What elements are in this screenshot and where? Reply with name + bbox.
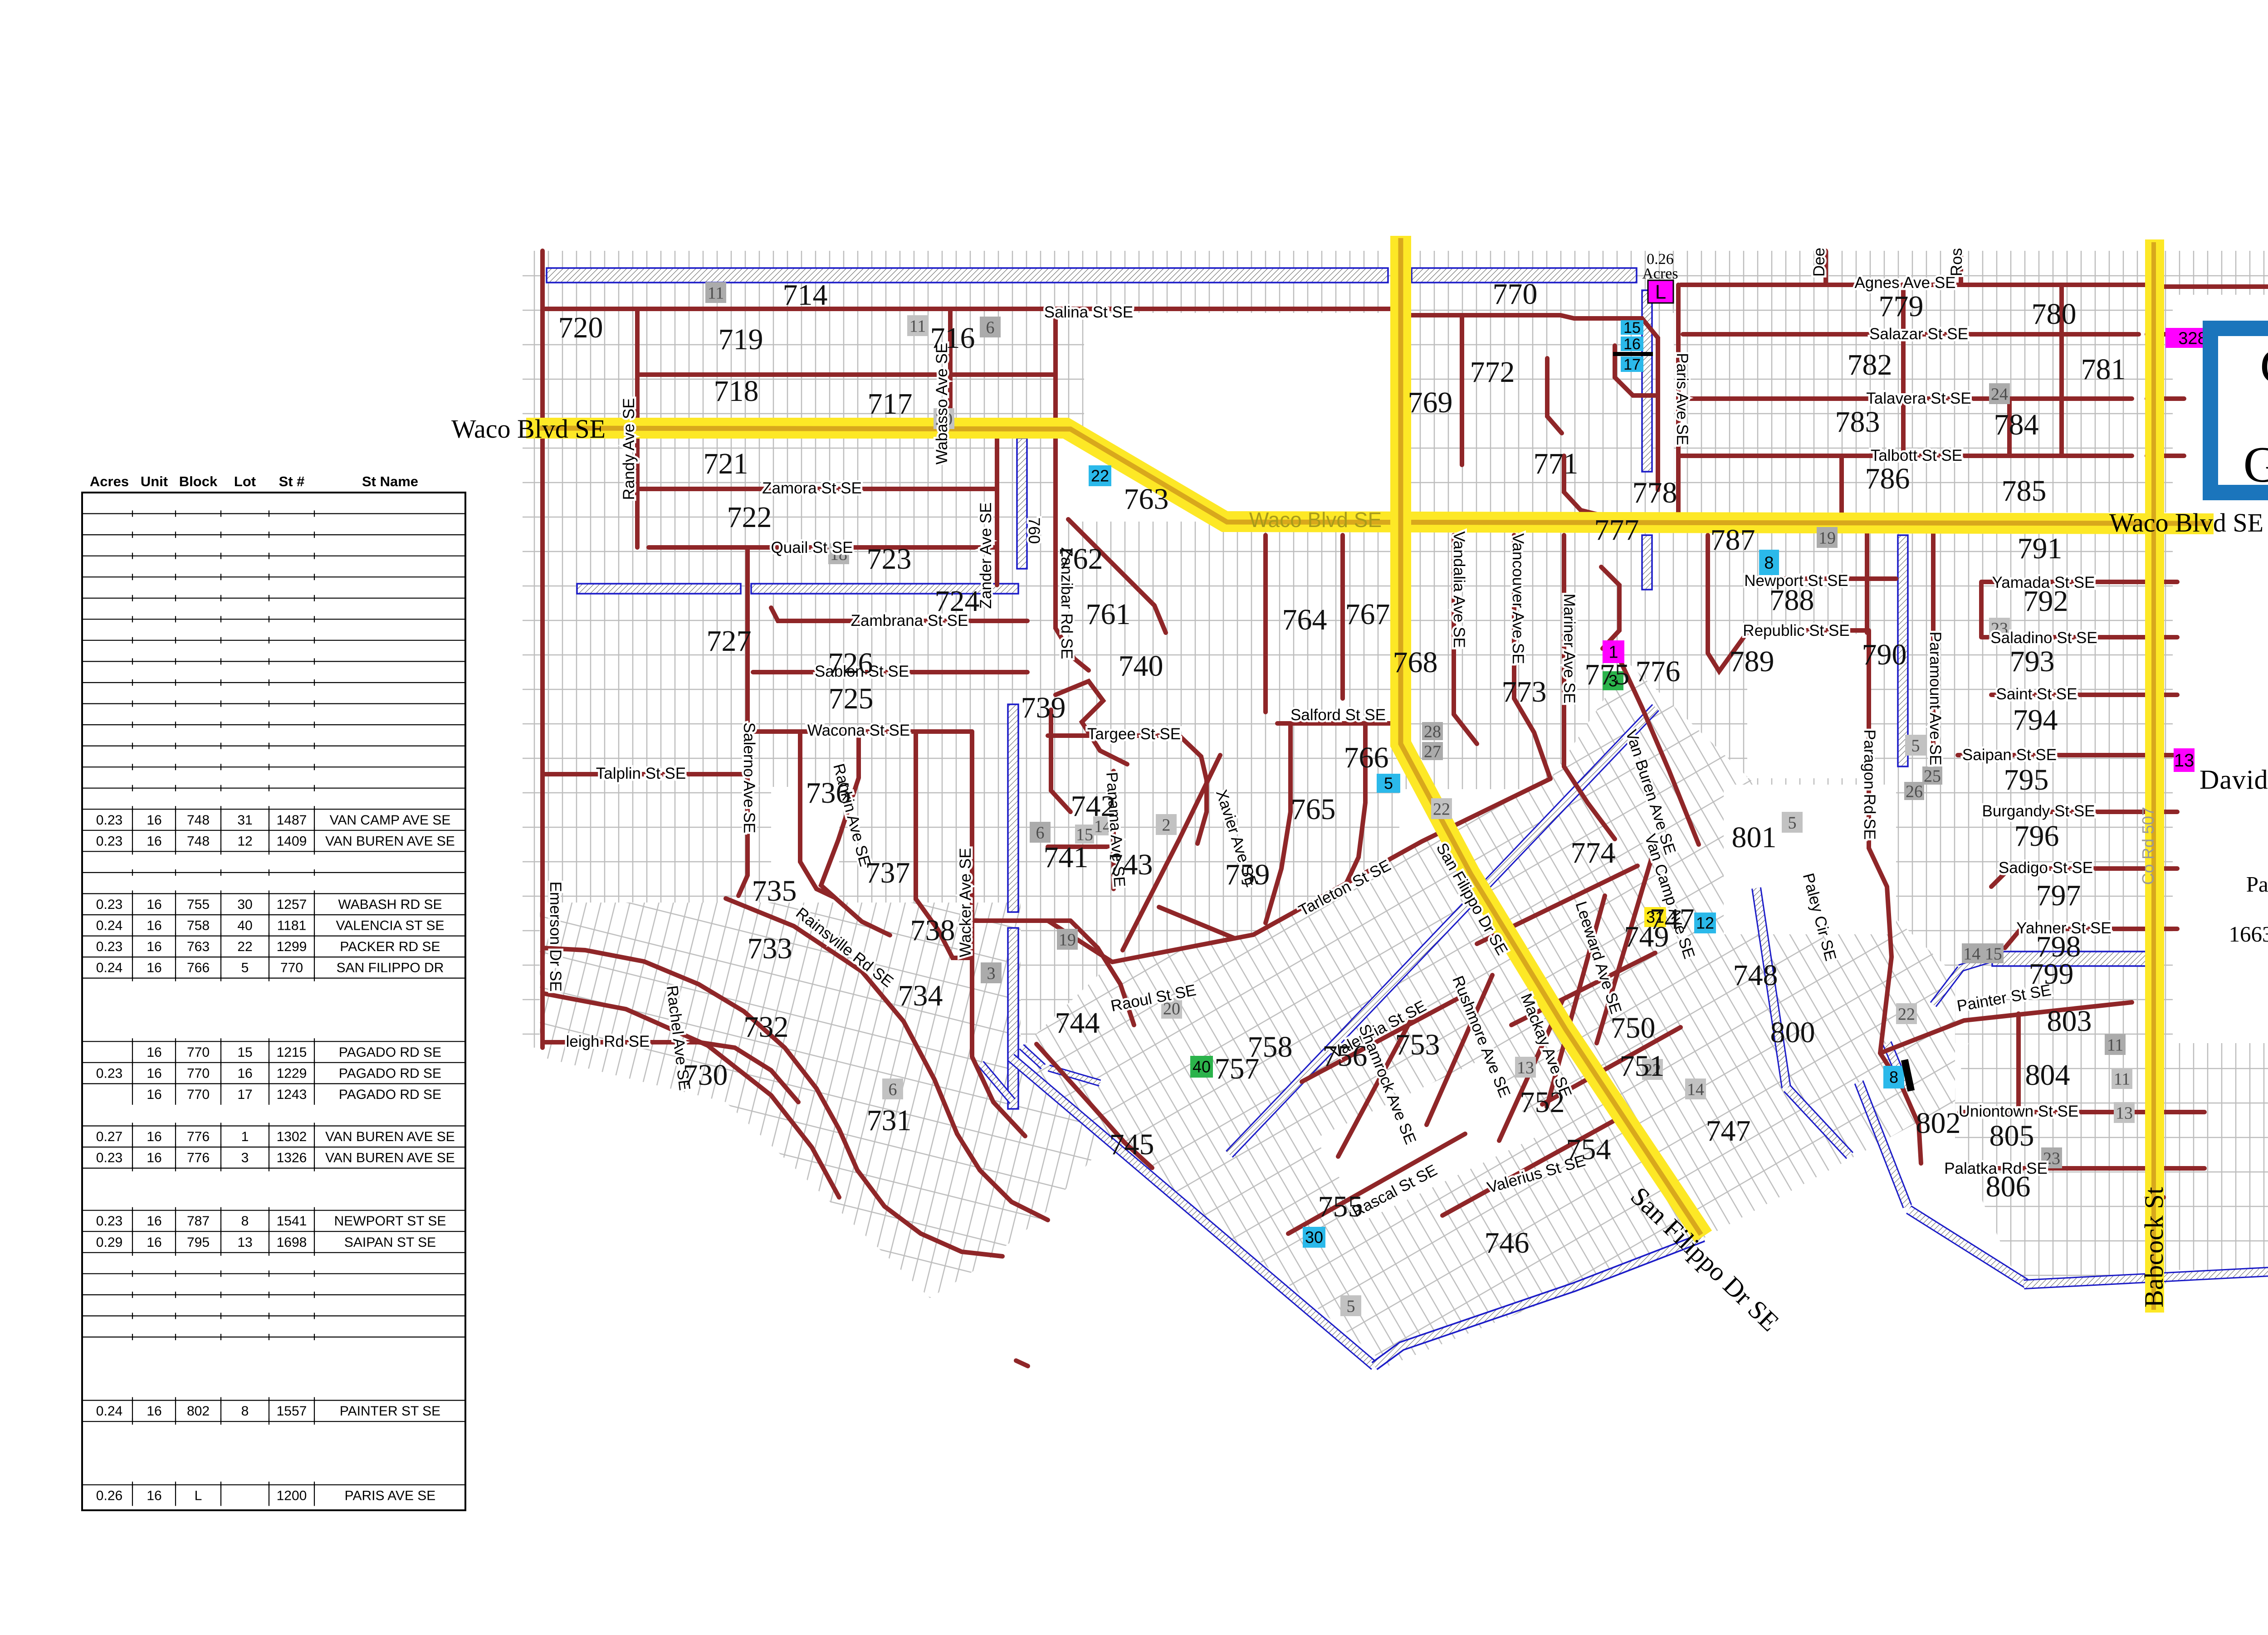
svg-text:St Name: St Name <box>362 473 418 489</box>
svg-text:Zamora St SE: Zamora St SE <box>762 479 862 497</box>
svg-text:5: 5 <box>1384 774 1393 793</box>
svg-text:27: 27 <box>1424 742 1441 761</box>
svg-text:Dee: Dee <box>1810 248 1828 277</box>
svg-text:Salina St SE: Salina St SE <box>1044 303 1134 321</box>
svg-text:Talplin St SE: Talplin St SE <box>596 765 686 782</box>
svg-text:766: 766 <box>1344 741 1389 774</box>
svg-text:763: 763 <box>1124 483 1169 516</box>
svg-text:St #: St # <box>279 473 305 489</box>
svg-text:Saipan St SE: Saipan St SE <box>1962 746 2057 764</box>
svg-text:11: 11 <box>2107 1035 2124 1054</box>
svg-text:741: 741 <box>1044 841 1089 874</box>
svg-text:Sadigo St SE: Sadigo St SE <box>1999 859 2093 877</box>
svg-text:719: 719 <box>719 323 763 356</box>
svg-text:Block: Block <box>179 473 218 489</box>
svg-text:leigh Rd SE: leigh Rd SE <box>566 1033 650 1050</box>
svg-text:758: 758 <box>187 918 210 933</box>
svg-text:776: 776 <box>1636 655 1681 688</box>
svg-text:799: 799 <box>2029 957 2074 991</box>
svg-text:PAGADO RD SE: PAGADO RD SE <box>339 1087 441 1102</box>
svg-text:1698: 1698 <box>277 1235 307 1250</box>
svg-text:1: 1 <box>241 1129 249 1144</box>
svg-text:722: 722 <box>727 501 772 534</box>
svg-text:25: 25 <box>1924 766 1941 786</box>
svg-text:Paragon Rd SE: Paragon Rd SE <box>1861 729 1878 839</box>
svg-text:L: L <box>1655 281 1666 303</box>
svg-text:22: 22 <box>1433 800 1450 819</box>
svg-text:779: 779 <box>1879 290 1924 323</box>
svg-text:24: 24 <box>1991 385 2008 404</box>
svg-text:734: 734 <box>898 979 943 1012</box>
svg-text:16: 16 <box>147 961 161 976</box>
svg-text:16: 16 <box>147 813 161 828</box>
svg-text:801: 801 <box>1732 821 1777 854</box>
svg-text:Randy Ave SE: Randy Ave SE <box>620 398 638 500</box>
svg-text:Paris Ave SE: Paris Ave SE <box>1673 353 1691 445</box>
svg-text:Saladino St SE: Saladino St SE <box>1990 629 2097 647</box>
svg-text:790: 790 <box>1862 638 1907 671</box>
svg-text:789: 789 <box>1730 645 1774 678</box>
svg-text:795: 795 <box>187 1235 210 1250</box>
svg-text:5: 5 <box>1788 813 1797 832</box>
svg-text:11: 11 <box>708 283 724 303</box>
svg-text:Quail St SE: Quail St SE <box>771 539 853 556</box>
svg-text:755: 755 <box>1318 1190 1363 1223</box>
svg-text:797: 797 <box>2036 879 2081 912</box>
svg-text:0.23: 0.23 <box>96 939 122 954</box>
svg-text:Wabasso Ave SE: Wabasso Ave SE <box>933 343 951 464</box>
svg-text:13: 13 <box>237 1235 252 1250</box>
svg-text:Paramount Ave SE: Paramount Ave SE <box>1926 631 1944 765</box>
svg-text:1299: 1299 <box>277 939 307 954</box>
svg-text:Salford St SE: Salford St SE <box>1290 706 1386 724</box>
svg-text:Targee St SE: Targee St SE <box>1087 725 1181 743</box>
svg-text:767: 767 <box>1345 598 1390 631</box>
svg-text:40: 40 <box>237 918 252 933</box>
svg-text:780: 780 <box>2032 298 2077 331</box>
svg-text:5: 5 <box>1347 1297 1355 1316</box>
svg-text:1257: 1257 <box>277 897 307 912</box>
svg-text:19: 19 <box>1818 528 1836 547</box>
svg-text:720: 720 <box>558 311 603 344</box>
svg-text:739: 739 <box>1021 691 1066 724</box>
svg-text:804: 804 <box>2025 1059 2070 1092</box>
svg-text:SAIPAN ST SE: SAIPAN ST SE <box>344 1235 436 1250</box>
svg-text:736: 736 <box>806 776 851 810</box>
svg-text:744: 744 <box>1055 1006 1100 1040</box>
svg-text:805: 805 <box>1989 1119 2034 1152</box>
svg-text:1229: 1229 <box>277 1066 307 1081</box>
svg-text:1200: 1200 <box>277 1488 307 1503</box>
svg-text:Wacona St SE: Wacona St SE <box>807 722 910 739</box>
svg-text:15: 15 <box>237 1045 252 1060</box>
svg-text:Waco Blvd SE: Waco Blvd SE <box>1249 508 1382 532</box>
svg-text:768: 768 <box>1393 646 1438 679</box>
svg-text:773: 773 <box>1502 675 1547 708</box>
svg-text:772: 772 <box>1470 356 1515 389</box>
svg-text:8: 8 <box>241 1214 249 1229</box>
svg-text:763: 763 <box>187 939 210 954</box>
svg-text:PARIS AVE SE: PARIS AVE SE <box>345 1488 436 1503</box>
svg-text:16: 16 <box>1623 336 1641 353</box>
svg-text:Burgandy St SE: Burgandy St SE <box>1982 802 2095 820</box>
svg-text:766: 766 <box>187 961 210 976</box>
svg-text:3: 3 <box>987 964 996 983</box>
svg-text:40: 40 <box>1193 1058 1211 1076</box>
svg-text:781: 781 <box>2081 353 2126 386</box>
svg-text:1409: 1409 <box>277 834 307 849</box>
svg-text:770: 770 <box>187 1087 210 1102</box>
svg-text:16: 16 <box>147 1129 161 1144</box>
svg-text:747: 747 <box>1650 903 1695 936</box>
svg-text:22: 22 <box>1898 1005 1915 1024</box>
svg-text:792: 792 <box>2024 585 2068 618</box>
svg-text:717: 717 <box>868 387 913 420</box>
svg-text:753: 753 <box>1395 1028 1440 1061</box>
svg-text:Wacker Ave SE: Wacker Ave SE <box>957 848 974 957</box>
svg-text:Uniontown St SE: Uniontown St SE <box>1959 1103 2079 1120</box>
svg-text:1243: 1243 <box>277 1087 307 1102</box>
svg-text:PAINTER ST SE: PAINTER ST SE <box>340 1404 440 1419</box>
svg-text:8: 8 <box>1764 553 1774 572</box>
svg-text:Vandalia Ave SE: Vandalia Ave SE <box>1450 531 1468 648</box>
svg-text:16: 16 <box>147 918 161 933</box>
svg-text:733: 733 <box>748 932 792 965</box>
svg-text:730: 730 <box>683 1059 728 1092</box>
svg-text:1326: 1326 <box>277 1151 307 1166</box>
svg-text:16: 16 <box>147 939 161 954</box>
svg-text:775: 775 <box>1585 658 1630 691</box>
svg-text:776: 776 <box>187 1151 210 1166</box>
svg-text:Waco Blvd SE: Waco Blvd SE <box>451 414 606 444</box>
svg-text:770: 770 <box>187 1066 210 1081</box>
svg-text:740: 740 <box>1119 649 1163 683</box>
svg-text:793: 793 <box>2010 645 2055 678</box>
svg-text:WABASH RD SE: WABASH RD SE <box>338 897 442 912</box>
svg-text:Babcock St: Babcock St <box>2139 1187 2169 1308</box>
svg-text:759: 759 <box>1225 858 1270 891</box>
svg-text:11: 11 <box>2114 1069 2131 1088</box>
svg-text:VAN BUREN AVE SE: VAN BUREN AVE SE <box>325 1151 455 1166</box>
svg-text:784: 784 <box>1994 408 2039 441</box>
svg-text:727: 727 <box>707 625 752 658</box>
svg-text:6: 6 <box>1036 823 1045 842</box>
svg-text:723: 723 <box>867 542 912 576</box>
svg-text:721: 721 <box>704 447 748 480</box>
svg-text:747: 747 <box>1706 1114 1751 1147</box>
svg-text:Republic St SE: Republic St SE <box>1743 622 1849 639</box>
svg-text:0.23: 0.23 <box>96 1151 122 1166</box>
svg-text:1181: 1181 <box>277 918 307 933</box>
svg-text:765: 765 <box>1291 793 1336 826</box>
svg-text:800: 800 <box>1770 1016 1815 1049</box>
svg-text:30: 30 <box>237 897 252 912</box>
svg-text:Lot: Lot <box>234 473 256 489</box>
svg-text:6: 6 <box>889 1080 897 1099</box>
svg-text:1215: 1215 <box>277 1045 307 1060</box>
svg-text:8: 8 <box>241 1404 249 1419</box>
svg-text:732: 732 <box>744 1010 789 1044</box>
svg-text:NEWPORT ST SE: NEWPORT ST SE <box>334 1214 446 1229</box>
svg-text:770: 770 <box>187 1045 210 1060</box>
svg-text:2: 2 <box>1162 815 1171 835</box>
svg-text:0.29: 0.29 <box>96 1235 122 1250</box>
svg-text:VAN CAMP AVE SE: VAN CAMP AVE SE <box>330 813 451 828</box>
svg-text:16: 16 <box>147 1066 161 1081</box>
svg-text:718: 718 <box>714 375 759 408</box>
svg-text:1541: 1541 <box>277 1214 307 1229</box>
svg-text:8: 8 <box>1889 1068 1898 1087</box>
svg-text:L: L <box>195 1488 202 1503</box>
svg-text:Emerson Dr SE: Emerson Dr SE <box>547 881 564 991</box>
svg-text:783: 783 <box>1835 405 1880 439</box>
svg-text:802: 802 <box>187 1404 210 1419</box>
svg-text:12: 12 <box>237 834 252 849</box>
svg-text:748: 748 <box>1733 959 1778 992</box>
svg-text:803: 803 <box>2047 1005 2092 1038</box>
svg-text:760: 760 <box>1025 517 1043 544</box>
svg-text:756: 756 <box>1323 1040 1368 1073</box>
svg-text:782: 782 <box>1848 348 1892 381</box>
svg-text:19: 19 <box>1059 930 1076 949</box>
svg-text:PalmBayLand@Gmail.com: PalmBayLand@Gmail.com <box>2246 872 2268 897</box>
svg-text:Co Rd 507: Co Rd 507 <box>2139 807 2157 885</box>
svg-text:30: 30 <box>1305 1228 1323 1247</box>
svg-text:769: 769 <box>1408 386 1453 419</box>
svg-text:0.23: 0.23 <box>96 834 122 849</box>
svg-text:806: 806 <box>1986 1170 2031 1203</box>
svg-text:746: 746 <box>1485 1226 1530 1259</box>
svg-text:Mariner Ave SE: Mariner Ave SE <box>1560 594 1578 704</box>
svg-text:Acres: Acres <box>90 473 129 489</box>
svg-text:SAN FILIPPO DR: SAN FILIPPO DR <box>337 961 444 976</box>
svg-text:774: 774 <box>1571 836 1616 869</box>
svg-text:750: 750 <box>1611 1011 1656 1044</box>
svg-text:13: 13 <box>2174 751 2195 771</box>
svg-text:0.23: 0.23 <box>96 813 122 828</box>
svg-text:755: 755 <box>187 897 210 912</box>
svg-text:16: 16 <box>147 1214 161 1229</box>
svg-text:748: 748 <box>187 834 210 849</box>
svg-text:3: 3 <box>241 1151 249 1166</box>
svg-text:13: 13 <box>1517 1058 1534 1077</box>
svg-text:16: 16 <box>147 897 161 912</box>
svg-text:761: 761 <box>1086 598 1131 631</box>
svg-text:0.27: 0.27 <box>96 1129 122 1144</box>
svg-text:778: 778 <box>1633 476 1677 509</box>
svg-text:731: 731 <box>867 1104 912 1137</box>
svg-text:16: 16 <box>147 1488 161 1503</box>
svg-text:0.23: 0.23 <box>96 1066 122 1081</box>
svg-text:14: 14 <box>1687 1080 1704 1099</box>
svg-text:Ros: Ros <box>1948 248 1965 276</box>
svg-text:PAGADO RD SE: PAGADO RD SE <box>339 1045 441 1060</box>
svg-text:745: 745 <box>1110 1128 1154 1161</box>
svg-text:796: 796 <box>2014 820 2059 853</box>
svg-text:788: 788 <box>1769 584 1814 617</box>
svg-text:1302: 1302 <box>277 1129 307 1144</box>
svg-text:757: 757 <box>1215 1052 1260 1085</box>
svg-text:764: 764 <box>1282 603 1327 636</box>
svg-text:726: 726 <box>828 647 873 680</box>
svg-text:22: 22 <box>237 939 252 954</box>
svg-text:0.23: 0.23 <box>96 897 122 912</box>
svg-text:David Moallem & Companies: David Moallem & Companies <box>2200 765 2268 795</box>
svg-text:6: 6 <box>986 318 995 337</box>
svg-text:Talavera St SE: Talavera St SE <box>1866 390 1971 407</box>
svg-text:VAN BUREN AVE SE: VAN BUREN AVE SE <box>325 834 455 849</box>
svg-text:1487: 1487 <box>277 813 307 828</box>
svg-text:16: 16 <box>147 1404 161 1419</box>
svg-text:Acres: Acres <box>1642 265 1678 282</box>
svg-text:17: 17 <box>237 1087 252 1102</box>
svg-text:11: 11 <box>909 317 926 336</box>
svg-text:13: 13 <box>2116 1103 2133 1123</box>
svg-text:770: 770 <box>280 961 303 976</box>
svg-text:754: 754 <box>1566 1133 1611 1166</box>
svg-text:PACKER RD SE: PACKER RD SE <box>340 939 440 954</box>
svg-text:1557: 1557 <box>277 1404 307 1419</box>
svg-text:737: 737 <box>865 856 910 889</box>
svg-text:714: 714 <box>783 278 828 312</box>
svg-text:0.24: 0.24 <box>96 1404 122 1419</box>
svg-text:City Water: City Water <box>2260 338 2268 395</box>
svg-text:Zander Ave SE: Zander Ave SE <box>977 503 995 609</box>
svg-text:31: 31 <box>237 813 252 828</box>
svg-text:Unit: Unit <box>141 473 168 489</box>
svg-text:1663 Georgia St. NE, Suite 200: 1663 Georgia St. NE, Suite 200 <box>2229 922 2268 947</box>
svg-text:VAN BUREN AVE SE: VAN BUREN AVE SE <box>325 1129 455 1144</box>
svg-text:Good Roads: Good Roads <box>2244 437 2268 493</box>
svg-text:22: 22 <box>1091 467 1109 485</box>
svg-text:Saint St SE: Saint St SE <box>1996 685 2077 703</box>
svg-text:Agnes Ave SE: Agnes Ave SE <box>1854 274 1955 292</box>
svg-text:16: 16 <box>147 1087 161 1102</box>
svg-text:791: 791 <box>2018 532 2063 565</box>
svg-text:742: 742 <box>1071 790 1116 823</box>
svg-text:777: 777 <box>1594 513 1639 547</box>
svg-text:Salazar St SE: Salazar St SE <box>1869 325 1968 343</box>
svg-text:PAGADO RD SE: PAGADO RD SE <box>339 1066 441 1081</box>
svg-text:5: 5 <box>1911 736 1920 755</box>
svg-text:16: 16 <box>147 1235 161 1250</box>
svg-text:16: 16 <box>147 1045 161 1060</box>
svg-text:0.23: 0.23 <box>96 1214 122 1229</box>
svg-text:VALENCIA ST SE: VALENCIA ST SE <box>336 918 445 933</box>
svg-text:15: 15 <box>1623 319 1641 337</box>
svg-text:Waco Blvd SE: Waco Blvd SE <box>2109 508 2263 537</box>
svg-text:771: 771 <box>1534 447 1579 480</box>
svg-text:28: 28 <box>1424 722 1441 741</box>
svg-text:785: 785 <box>2002 474 2047 508</box>
svg-text:794: 794 <box>2013 703 2058 737</box>
svg-text:725: 725 <box>829 682 874 715</box>
svg-text:787: 787 <box>187 1214 210 1229</box>
svg-text:787: 787 <box>1711 523 1755 556</box>
svg-text:17: 17 <box>1623 356 1641 373</box>
svg-text:716: 716 <box>930 322 975 355</box>
svg-text:802: 802 <box>1916 1107 1961 1140</box>
svg-text:770: 770 <box>1493 278 1538 311</box>
svg-text:762: 762 <box>1058 542 1103 576</box>
svg-text:14 15: 14 15 <box>1963 944 2002 963</box>
svg-text:786: 786 <box>1865 462 1910 495</box>
svg-text:Vancouver Ave SE: Vancouver Ave SE <box>1509 533 1527 664</box>
svg-text:795: 795 <box>2004 763 2049 796</box>
svg-text:743: 743 <box>1108 848 1153 881</box>
svg-text:16: 16 <box>237 1066 252 1081</box>
svg-text:16: 16 <box>147 1151 161 1166</box>
svg-text:735: 735 <box>752 874 797 908</box>
svg-text:12: 12 <box>1696 914 1714 932</box>
svg-text:0.26: 0.26 <box>96 1488 122 1503</box>
svg-text:26: 26 <box>1906 782 1923 801</box>
svg-text:16: 16 <box>147 834 161 849</box>
svg-text:752: 752 <box>1520 1086 1565 1119</box>
svg-text:0.24: 0.24 <box>96 918 122 933</box>
svg-text:738: 738 <box>910 914 955 947</box>
svg-text:748: 748 <box>187 813 210 828</box>
svg-text:Salerno Ave SE: Salerno Ave SE <box>740 722 758 834</box>
svg-text:0.24: 0.24 <box>96 961 122 976</box>
svg-text:776: 776 <box>187 1129 210 1144</box>
svg-text:724: 724 <box>935 585 980 618</box>
svg-text:5: 5 <box>241 961 249 976</box>
svg-text:751: 751 <box>1620 1049 1665 1083</box>
